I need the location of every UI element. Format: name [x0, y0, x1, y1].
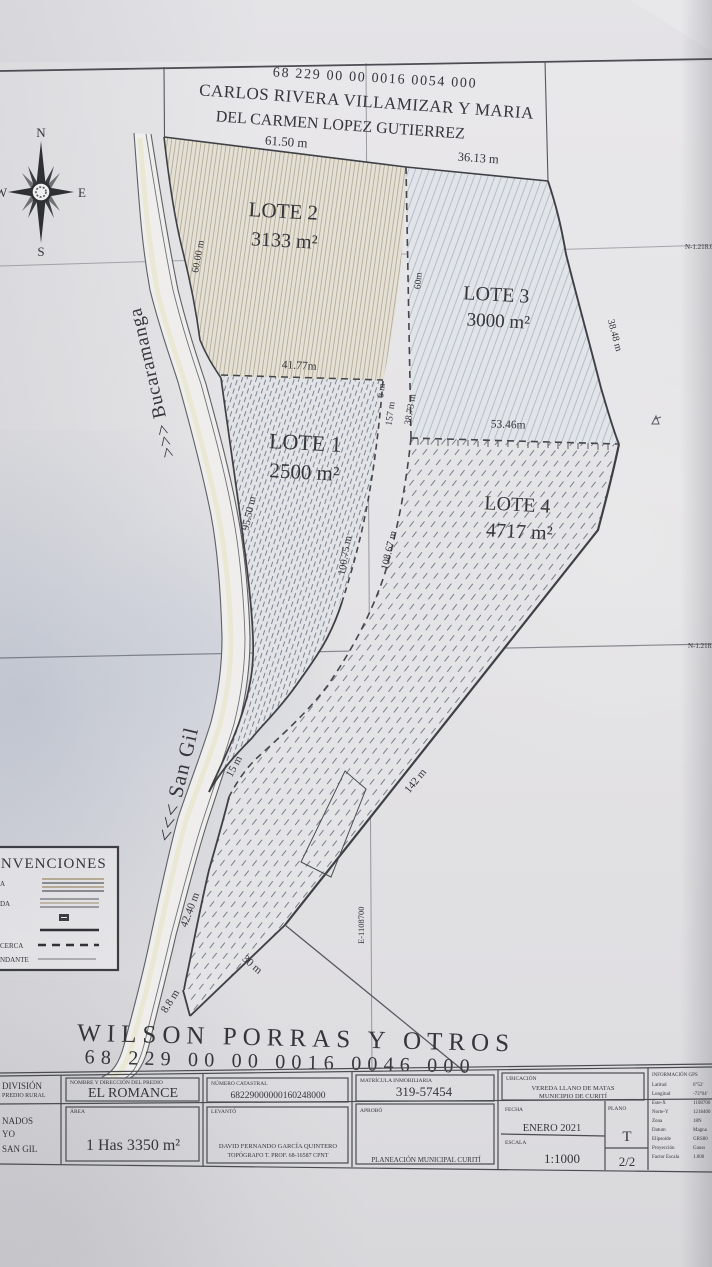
svg-text:NOMBRE Y DIRECCIÓN DEL PREDIO: NOMBRE Y DIRECCIÓN DEL PREDIO: [70, 1078, 163, 1086]
svg-text:53.46m: 53.46m: [490, 418, 525, 431]
svg-text:MUNICIPIO DE CURITÍ: MUNICIPIO DE CURITÍ: [539, 1092, 607, 1100]
svg-text:N-1.218.4: N-1.218.4: [688, 642, 712, 650]
svg-text:EL ROMANCE: EL ROMANCE: [88, 1086, 178, 1101]
svg-text:6 m: 6 m: [376, 382, 388, 398]
svg-text:-73°04': -73°04': [693, 1092, 708, 1097]
svg-text:CERCA: CERCA: [0, 942, 23, 950]
svg-text:S: S: [37, 244, 44, 259]
svg-text:UBICACIÓN: UBICACIÓN: [506, 1074, 537, 1082]
svg-text:TOPÓGRAFO T. PROF. 68-16587 CP: TOPÓGRAFO T. PROF. 68-16587 CPNT: [228, 1151, 329, 1159]
svg-text:60m: 60m: [413, 271, 424, 289]
svg-text:NADOS: NADOS: [2, 1116, 33, 1126]
svg-text:36.13 m: 36.13 m: [457, 150, 499, 167]
svg-text:ENERO 2021: ENERO 2021: [523, 1123, 582, 1134]
svg-text:T: T: [622, 1129, 631, 1145]
svg-text:VEREDA LLANO DE MATAS: VEREDA LLANO DE MATAS: [531, 1085, 614, 1092]
svg-text:6°52': 6°52': [693, 1083, 703, 1088]
svg-text:DA: DA: [0, 900, 10, 908]
svg-text:Latitud: Latitud: [652, 1083, 667, 1088]
svg-text:Este-X: Este-X: [652, 1101, 666, 1106]
svg-text:1:1000: 1:1000: [544, 1151, 580, 1166]
svg-text:LOTE 3: LOTE 3: [463, 282, 530, 307]
svg-text:W: W: [0, 185, 8, 200]
svg-text:PLANO: PLANO: [608, 1106, 626, 1112]
svg-text:GRS80: GRS80: [693, 1137, 708, 1142]
svg-text:LEVANTÓ: LEVANTÓ: [211, 1107, 236, 1115]
svg-text:319-57454: 319-57454: [396, 1084, 453, 1099]
svg-text:INFORMACIÓN GPS: INFORMACIÓN GPS: [652, 1072, 698, 1078]
svg-text:2/2: 2/2: [619, 1154, 636, 1169]
svg-text:NDANTE: NDANTE: [0, 956, 29, 964]
svg-text:PREDIO RURAL: PREDIO RURAL: [2, 1093, 46, 1099]
svg-text:3000 m²: 3000 m²: [466, 309, 531, 333]
svg-text:Gauss: Gauss: [693, 1146, 705, 1151]
svg-text:NÚMERO CATASTRAL: NÚMERO CATASTRAL: [211, 1079, 268, 1087]
svg-text:1 Has 3350 m²: 1 Has 3350 m²: [86, 1137, 180, 1154]
svg-text:E-1108700: E-1108700: [356, 907, 366, 944]
svg-text:Magna: Magna: [693, 1128, 708, 1133]
svg-text:4717 m²: 4717 m²: [486, 519, 554, 544]
svg-text:ESCALA: ESCALA: [505, 1140, 526, 1146]
svg-text:LOTE 4: LOTE 4: [484, 492, 551, 517]
svg-text:APROBÓ: APROBÓ: [360, 1106, 382, 1114]
svg-text:PLANEACIÓN MUNICIPAL CURITÍ: PLANEACIÓN MUNICIPAL CURITÍ: [371, 1156, 481, 1164]
svg-text:YO: YO: [2, 1129, 15, 1139]
svg-text:18N: 18N: [693, 1119, 702, 1124]
svg-text:61.50 m: 61.50 m: [265, 133, 309, 151]
svg-text:LOTE 2: LOTE 2: [248, 197, 319, 225]
svg-text:N-1.218.60: N-1.218.60: [685, 243, 712, 251]
svg-text:41.77m: 41.77m: [281, 359, 316, 373]
svg-text:Datum: Datum: [652, 1128, 666, 1133]
svg-text:MATRÍCULA INMOBILIARIA: MATRÍCULA INMOBILIARIA: [360, 1076, 432, 1084]
svg-text:CONVENCIONES: CONVENCIONES: [0, 856, 107, 872]
svg-text:Zona: Zona: [652, 1119, 663, 1124]
svg-text:E: E: [78, 185, 86, 200]
svg-text:ÁREA: ÁREA: [70, 1107, 85, 1115]
svg-text:DIVISIÓN: DIVISIÓN: [2, 1081, 42, 1091]
svg-text:SAN GIL: SAN GIL: [2, 1144, 37, 1154]
svg-text:Proyección: Proyección: [652, 1146, 675, 1151]
svg-text:1.000: 1.000: [693, 1155, 705, 1160]
svg-text:FECHA: FECHA: [505, 1107, 523, 1113]
svg-text:LOTE 1: LOTE 1: [268, 428, 342, 457]
svg-text:1218400: 1218400: [693, 1110, 711, 1115]
svg-text:1108700: 1108700: [693, 1101, 711, 1106]
svg-text:A: A: [0, 880, 5, 888]
svg-text:Factor Escala: Factor Escala: [652, 1155, 680, 1160]
svg-text:3133 m²: 3133 m²: [251, 228, 319, 253]
svg-text:68229000000160248000: 68229000000160248000: [231, 1091, 326, 1101]
svg-text:N: N: [36, 125, 46, 140]
svg-text:DAVID FERNANDO GARCÍA QUINTERO: DAVID FERNANDO GARCÍA QUINTERO: [219, 1142, 337, 1150]
svg-text:Elipsoide: Elipsoide: [652, 1137, 672, 1142]
svg-text:2500 m²: 2500 m²: [269, 458, 340, 486]
svg-text:Norte-Y: Norte-Y: [652, 1110, 669, 1115]
svg-text:Longitud: Longitud: [652, 1092, 671, 1097]
